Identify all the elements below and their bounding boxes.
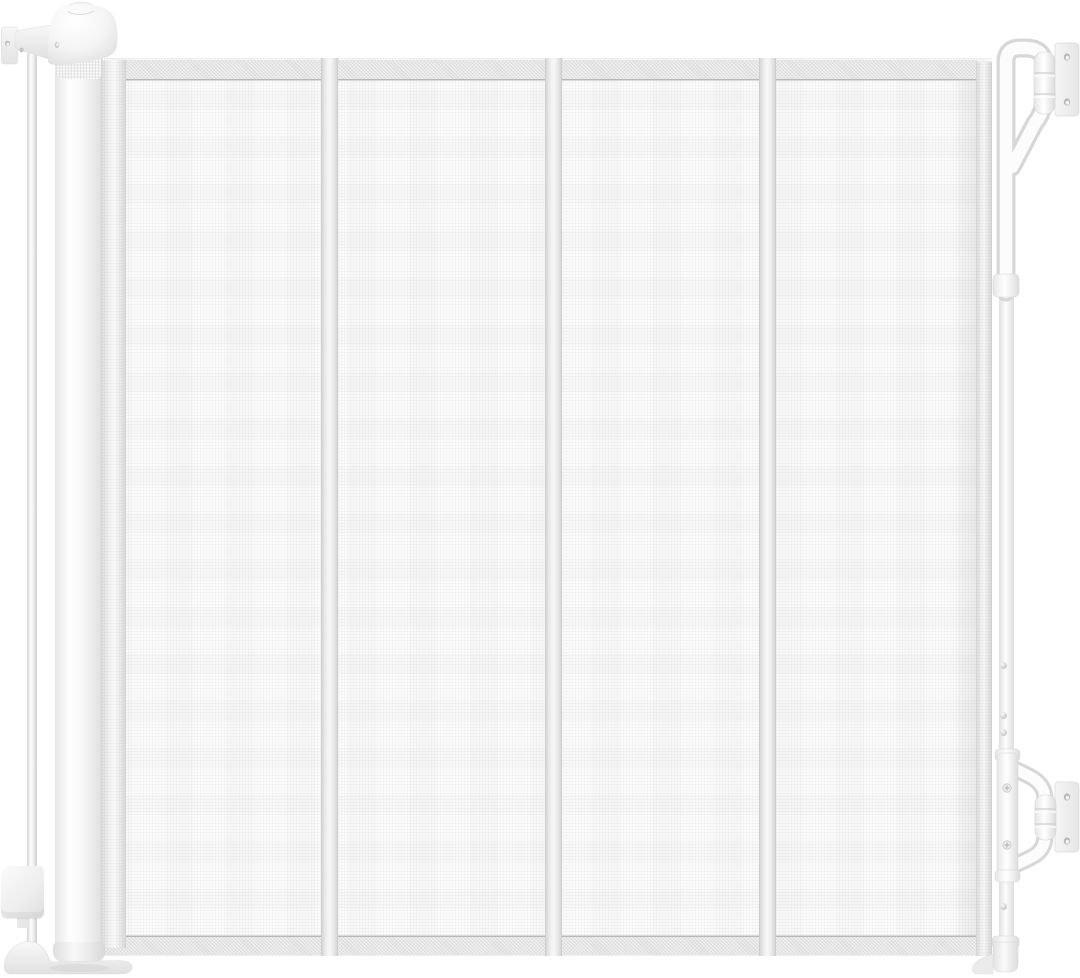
bar-foot — [966, 928, 1026, 978]
mesh-seam — [321, 58, 338, 956]
base-foot — [0, 928, 150, 978]
bar-screw — [1000, 903, 1007, 910]
lock-latch — [1, 866, 44, 918]
tension-rod — [27, 50, 37, 948]
hinge-cylinder — [1034, 52, 1055, 114]
roller-post — [55, 54, 103, 952]
top-latch-bracket — [984, 30, 1080, 302]
top-cap-head — [48, 4, 118, 65]
top-cap-assembly — [0, 0, 130, 90]
mesh-top-band — [104, 60, 977, 79]
cap-dimple-highlight — [56, 43, 58, 46]
lock-latch-tab — [17, 917, 28, 928]
wall-plate-hole-highlight — [1066, 840, 1070, 844]
mesh-right-shading — [950, 81, 976, 936]
bar-sleeve — [997, 753, 1018, 881]
mesh-seam — [545, 58, 562, 956]
bar-bottom-cap — [993, 942, 1018, 972]
foot-shadow — [49, 964, 109, 972]
bar-screw — [1000, 729, 1007, 736]
wall-plate-hole-highlight — [1066, 56, 1070, 60]
gate-mesh-panel — [104, 58, 992, 956]
bracket-hole-highlight — [6, 43, 9, 46]
bar-foot-wedge — [972, 954, 993, 974]
sleeve-bottom-cap — [995, 870, 1020, 882]
rolled-mesh-edge — [101, 60, 126, 948]
bracket-hole — [19, 48, 23, 53]
mesh-seam — [759, 58, 776, 956]
bottom-latch-bracket — [984, 745, 1080, 885]
bar-screw — [1000, 662, 1007, 669]
wall-plate-hole-highlight — [1066, 796, 1070, 800]
cap-latch-arm — [15, 25, 52, 60]
hinge-cylinder — [1035, 795, 1056, 840]
mesh-weave-texture — [101, 60, 126, 948]
loop-end-cap — [993, 274, 1019, 297]
wall-plate-hole-highlight — [1066, 101, 1070, 105]
mesh-bottom-band — [104, 937, 977, 955]
scene — [0, 0, 1080, 978]
bar-screw — [1000, 712, 1007, 719]
